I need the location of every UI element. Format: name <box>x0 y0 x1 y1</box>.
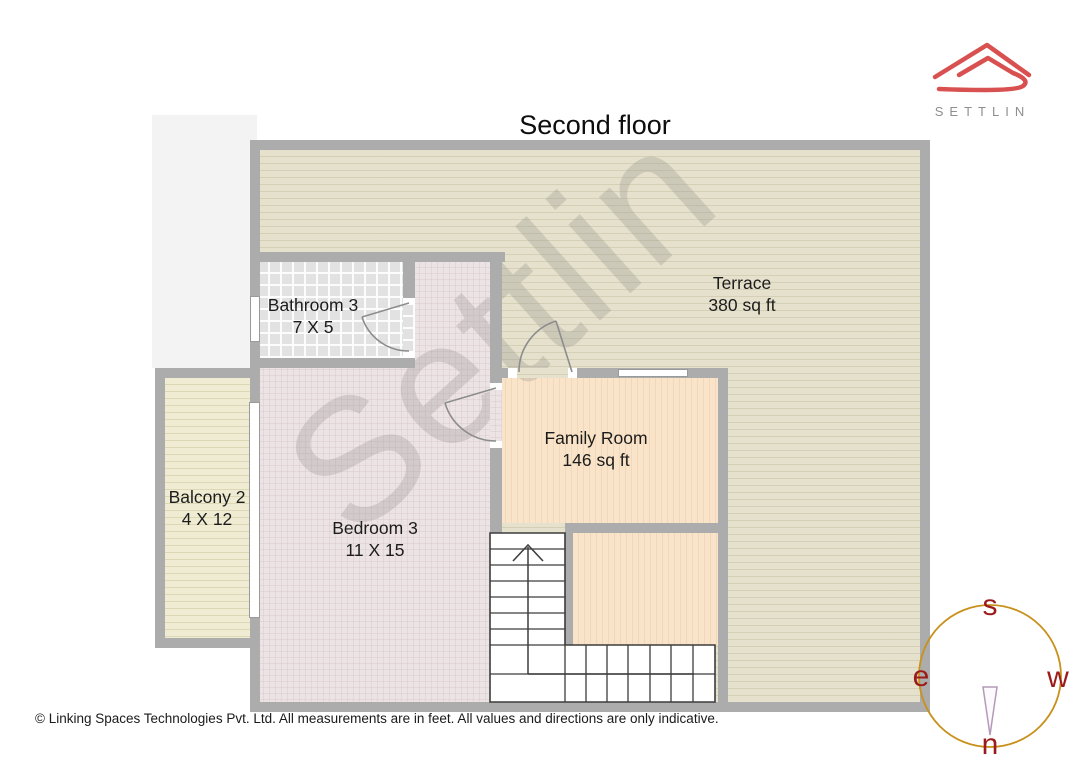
wall-balcony-left <box>155 368 165 648</box>
brand-name: SETTLIN <box>925 104 1040 119</box>
bedroom-door-jamb <box>490 383 502 390</box>
room-name: Bathroom 3 <box>268 294 358 316</box>
brand-logo: SETTLIN <box>925 35 1040 119</box>
wall-stair-divider <box>565 533 573 645</box>
compass-north: n <box>982 728 999 762</box>
compass-west: w <box>1047 661 1069 695</box>
ghost-structure-outline <box>152 115 257 368</box>
wall-outer-top <box>250 140 930 150</box>
wall-balcony-bottom <box>155 638 258 648</box>
bedroom-balcony-slider-window <box>249 402 260 618</box>
compass-east: e <box>913 660 930 694</box>
room-label-balcony: Balcony 2 4 X 12 <box>169 486 246 530</box>
room-name: Family Room <box>544 427 647 449</box>
bathroom-window <box>250 296 260 342</box>
bedroom-door-opening <box>490 390 502 441</box>
room-dims: 380 sq ft <box>708 294 775 316</box>
bathroom-door-jamb <box>403 298 415 305</box>
room-label-family: Family Room 146 sq ft <box>544 427 647 471</box>
terrace-door-opening <box>517 368 568 378</box>
family-room-window <box>618 369 688 377</box>
wall-balcony-top <box>155 368 258 378</box>
room-name: Terrace <box>708 272 775 294</box>
floorplan-page: SETTLIN Second floor Settlin <box>0 0 1080 764</box>
room-name: Balcony 2 <box>169 486 246 508</box>
settlin-roof-icon <box>925 35 1040 95</box>
room-label-bathroom: Bathroom 3 7 X 5 <box>268 294 358 338</box>
bedroom-door-jamb <box>490 441 502 448</box>
footer-disclaimer: © Linking Spaces Technologies Pvt. Ltd. … <box>35 711 719 726</box>
wall-outer-right <box>920 140 930 712</box>
compass-ring <box>919 605 1061 747</box>
stair-landing-floor <box>573 533 718 645</box>
room-label-bedroom: Bedroom 3 11 X 15 <box>332 517 418 561</box>
compass-south: s <box>983 589 998 623</box>
room-label-terrace: Terrace 380 sq ft <box>708 272 775 316</box>
wall-family-bottom <box>565 523 728 533</box>
bathroom-door-opening <box>403 305 415 351</box>
wall-family-right <box>718 368 728 712</box>
room-name: Bedroom 3 <box>332 517 418 539</box>
room-dims: 4 X 12 <box>169 508 246 530</box>
wall-bathroom-top <box>250 252 505 262</box>
page-title: Second floor <box>519 110 671 141</box>
wall-bathroom-bottom <box>250 358 415 368</box>
terrace-door-jamb <box>568 368 577 378</box>
terrace-door-jamb <box>508 368 517 378</box>
room-dims: 146 sq ft <box>544 449 647 471</box>
room-dims: 11 X 15 <box>332 539 418 561</box>
room-dims: 7 X 5 <box>268 316 358 338</box>
bathroom-door-jamb <box>403 351 415 358</box>
